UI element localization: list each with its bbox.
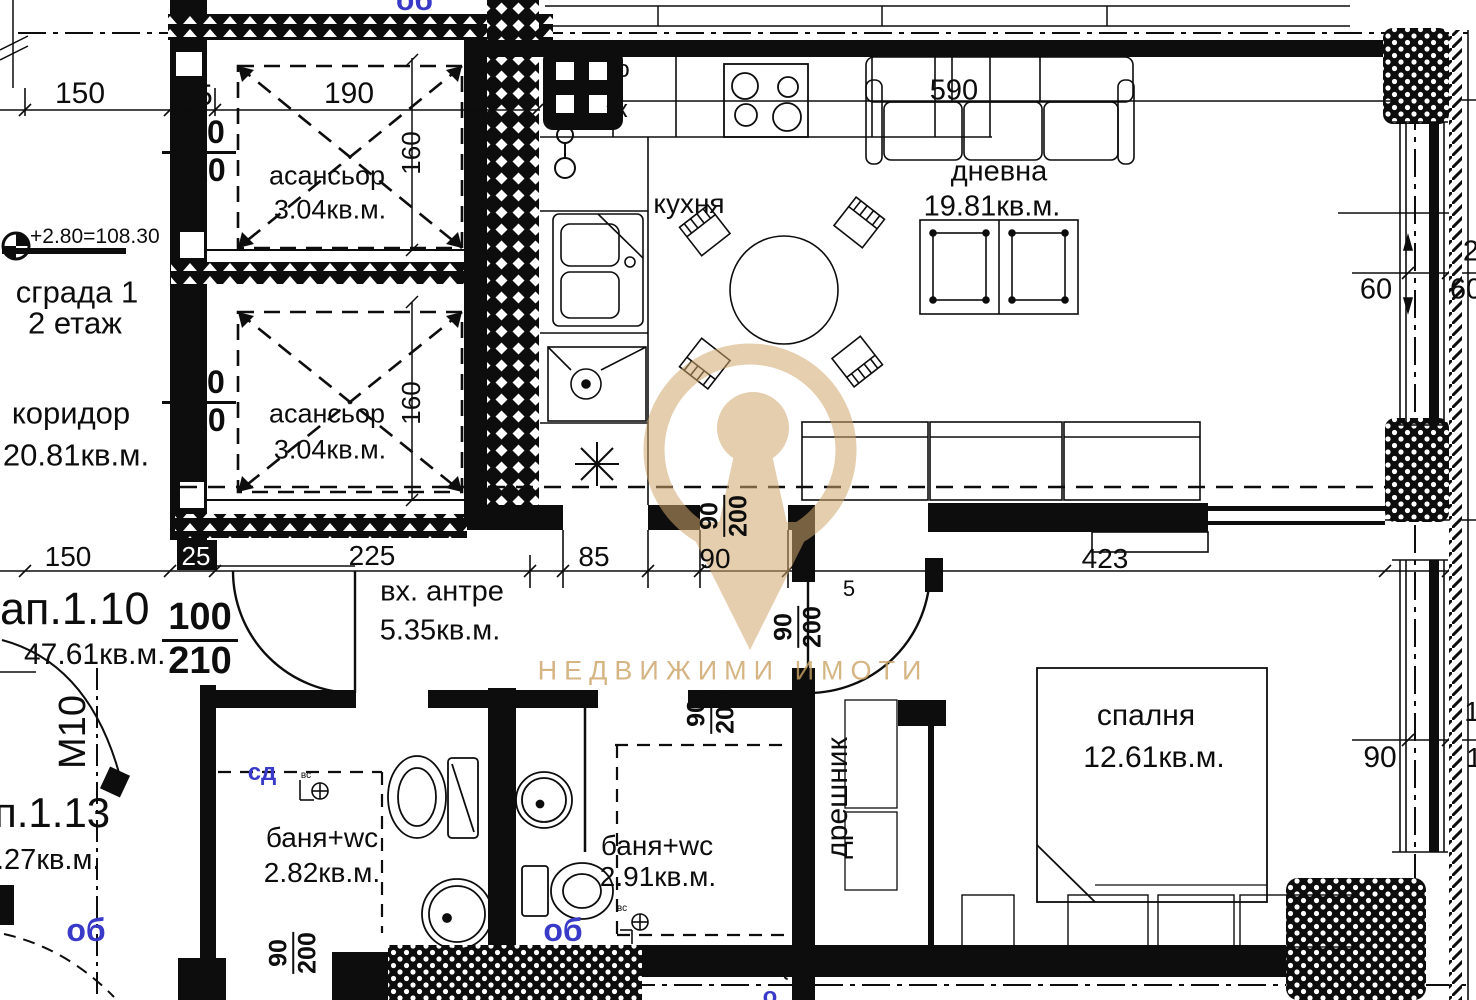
shaft-letter-o: о bbox=[616, 58, 629, 82]
apartment-113-area: .27кв.м. bbox=[0, 846, 100, 875]
dim-right-partial2: 1 bbox=[1466, 744, 1476, 772]
dim-right-2: 2 bbox=[1463, 238, 1476, 267]
dining-table bbox=[730, 236, 838, 344]
living-area: 19.81кв.м. bbox=[924, 193, 1061, 222]
floor-plan: 150 25 190 590 110 210 110 210 100 210 а… bbox=[0, 0, 1476, 1000]
dim-mid-85: 85 bbox=[578, 543, 609, 571]
elevator2-area: 3.04кв.м. bbox=[274, 437, 386, 464]
corridor-name: коридор bbox=[12, 398, 130, 429]
coffee-tables bbox=[920, 220, 1078, 314]
dim-mid-225: 225 bbox=[349, 542, 396, 570]
shaft-width-dim: 160 bbox=[398, 131, 424, 174]
plumbing-riser-113: об bbox=[66, 914, 105, 946]
entry-door-size: 100 210 bbox=[162, 598, 238, 681]
column-mark-m10: М10 bbox=[54, 695, 92, 769]
plumbing-riser-top: об bbox=[396, 0, 433, 16]
shaft-letter-k: к bbox=[617, 98, 628, 122]
sink-2 bbox=[516, 772, 572, 828]
plumbing-riser-bath2: об bbox=[543, 914, 582, 946]
dim-top-150: 150 bbox=[55, 79, 105, 109]
elevator1-name: асансьор bbox=[269, 163, 385, 190]
entry-door-arc bbox=[233, 571, 355, 693]
dim-mid-150: 150 bbox=[45, 543, 92, 571]
bath1-area: 2.82кв.м. bbox=[264, 859, 380, 887]
lift-door-size: 110 210 bbox=[162, 116, 236, 186]
dim-mid-25: 25 bbox=[182, 543, 211, 569]
dim-top-590: 590 bbox=[930, 77, 978, 106]
wall-thickness-25: 25 bbox=[781, 955, 805, 982]
living-name: дневна bbox=[951, 158, 1048, 187]
dim-top-25: 25 bbox=[179, 81, 212, 111]
apartment-110-area: 47.61кв.м. bbox=[24, 640, 165, 670]
entry-hall-name: вх. антре bbox=[380, 578, 504, 607]
bath2-area: 2.91кв.м. bbox=[600, 863, 716, 891]
apartment-113-id: п.1.13 bbox=[0, 792, 110, 834]
interior-door-size: 90 200 bbox=[265, 932, 321, 974]
level-mark: +2.80=108.30 bbox=[30, 226, 160, 247]
valve-label: вс bbox=[617, 904, 627, 914]
dim-mid-90: 90 bbox=[699, 545, 730, 573]
dim-top-190: 190 bbox=[324, 79, 374, 109]
bath1-name: баня+wc bbox=[266, 824, 378, 852]
floor-label: 2 етаж bbox=[28, 308, 122, 339]
interior-door-size: 90 200 bbox=[683, 692, 739, 734]
dim-5: 5 bbox=[843, 578, 855, 600]
dim-right-partial1: 1 bbox=[1464, 698, 1476, 726]
dim-mid-423: 423 bbox=[1082, 545, 1129, 573]
bath2-name: баня+wc bbox=[601, 832, 713, 860]
bedroom-area: 12.61кв.м. bbox=[1083, 743, 1224, 773]
building-label: сграда 1 bbox=[16, 277, 138, 308]
apartment-110-id: ап.1.10 bbox=[0, 586, 149, 631]
chair bbox=[834, 197, 885, 248]
watermark-text: НЕДВИЖИМИ ИМОТИ bbox=[538, 656, 929, 687]
shaft-width-dim: 160 bbox=[398, 381, 424, 424]
elevator2-name: асансьор bbox=[269, 401, 385, 428]
dim-right-60a: 60 bbox=[1360, 276, 1392, 305]
corridor-area: 20.81кв.м. bbox=[3, 440, 149, 471]
kitchen-name: кухня bbox=[653, 190, 724, 218]
pendant-symbol bbox=[555, 127, 575, 178]
plumbing-riser-bath1: сд bbox=[248, 761, 277, 785]
toilet-1 bbox=[388, 756, 478, 838]
elevator1-area: 3.04кв.м. bbox=[274, 197, 386, 224]
interior-door-size: 90 200 bbox=[770, 606, 826, 648]
living-furniture bbox=[802, 57, 1208, 552]
dishwasher bbox=[548, 347, 646, 421]
lift-door-size: 110 210 bbox=[162, 366, 236, 436]
plumbing-riser-bottom: о bbox=[763, 985, 778, 1000]
closet-name: дрешник bbox=[823, 737, 853, 858]
sink-1 bbox=[422, 879, 492, 949]
sofa bbox=[866, 57, 1134, 164]
interior-door-size: 90 200 bbox=[696, 495, 752, 537]
chair bbox=[832, 336, 883, 387]
entry-hall-area: 5.35кв.м. bbox=[380, 617, 501, 646]
dim-right-60b: 60 bbox=[1450, 276, 1476, 305]
kitchen-sink bbox=[553, 214, 643, 326]
valve-label: вс bbox=[301, 771, 311, 781]
boiler-symbol bbox=[575, 442, 619, 486]
dim-right-90: 90 bbox=[1363, 743, 1396, 773]
bedroom-name: спалня bbox=[1097, 701, 1195, 731]
